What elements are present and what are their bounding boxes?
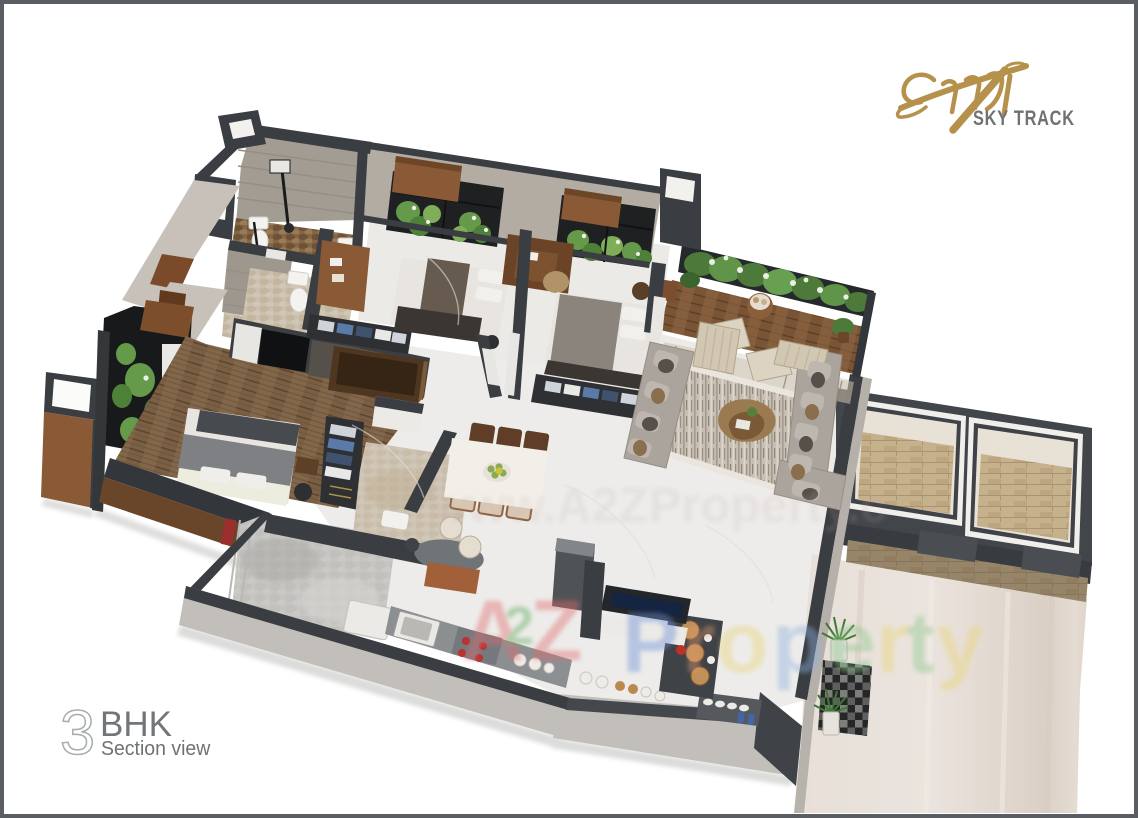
svg-text:Z: Z xyxy=(530,583,583,679)
svg-text:www.A2ZProperty.c: www.A2ZProperty.c xyxy=(429,479,887,533)
svg-text:p: p xyxy=(772,595,825,691)
svg-text:y: y xyxy=(936,595,984,691)
svg-text:r: r xyxy=(876,595,909,691)
svg-text:P: P xyxy=(622,595,679,691)
svg-text:o: o xyxy=(716,595,769,691)
svg-text:SKY TRACK: SKY TRACK xyxy=(973,107,1075,131)
svg-text:t: t xyxy=(906,595,935,691)
svg-text:3: 3 xyxy=(60,698,95,768)
svg-text:r: r xyxy=(682,595,715,691)
svg-text:e: e xyxy=(828,595,876,691)
svg-text:Section view: Section view xyxy=(101,738,211,761)
